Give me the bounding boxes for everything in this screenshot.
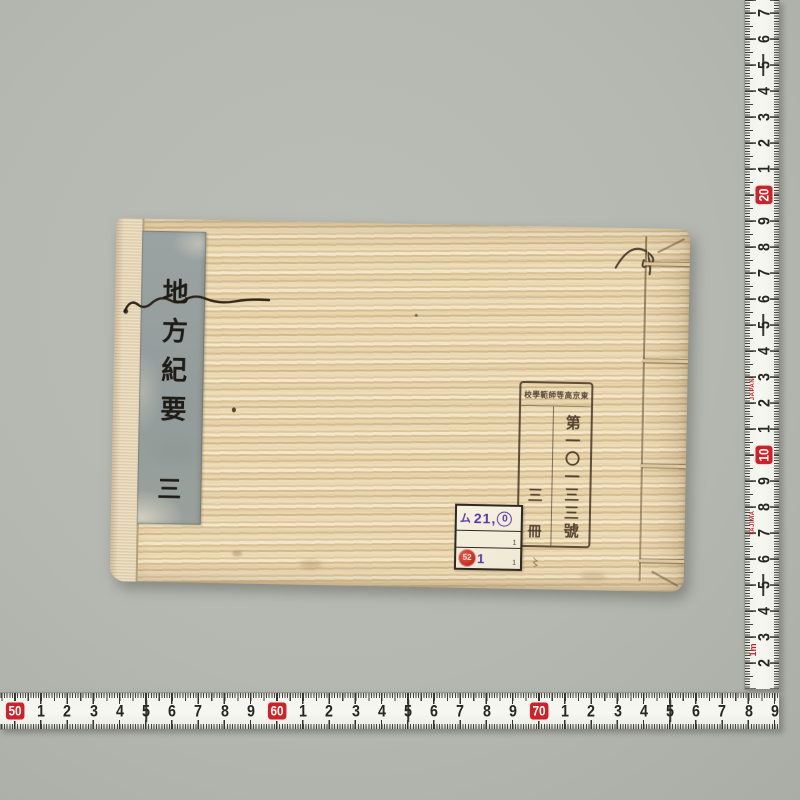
ruler-number: 9 xyxy=(756,217,773,225)
ruler-number: 2 xyxy=(63,703,71,720)
tape-brand-text: 1m xyxy=(748,643,758,656)
ruler-number: 2 xyxy=(325,703,333,720)
ruler-number: 8 xyxy=(756,503,773,511)
ruler-number: 8 xyxy=(221,703,229,720)
ruler-number: 5 xyxy=(142,703,150,720)
ruler-number: 5 xyxy=(666,703,674,720)
ruler-number: 9 xyxy=(771,703,779,720)
ruler-number: 5 xyxy=(756,61,773,69)
ruler-number: 7 xyxy=(756,529,773,537)
call-label-row-3: 52 1 1 xyxy=(456,548,520,569)
stamp-header-text: 東京高等師範學校 xyxy=(521,383,591,407)
ruler-number: 1 xyxy=(756,165,773,173)
ruler-number: 6 xyxy=(168,703,176,720)
binding-thread xyxy=(639,236,648,581)
tape-brand-text: JAPAN xyxy=(750,377,756,399)
ruler-number: 6 xyxy=(756,555,773,563)
ruler-ticks-mm xyxy=(0,693,779,698)
ruler-number: 2 xyxy=(756,659,773,667)
ruler-number: 3 xyxy=(756,633,773,641)
call-number-label: ム 21, 0 1 52 1 1 xyxy=(454,504,523,571)
library-stamp: 東京高等師範學校 三 冊 第一〇一三三號 xyxy=(516,381,593,548)
ruler-decade-badge: 50 xyxy=(6,703,24,720)
ruler-number: 6 xyxy=(756,295,773,303)
ruler-number: 1 xyxy=(299,703,307,720)
ruler-ticks-halfcm xyxy=(745,0,753,689)
volume-calligraphy: 三 xyxy=(157,469,182,504)
call-label-small-mark: 1 xyxy=(512,540,516,547)
ruler-number: 3 xyxy=(614,703,622,720)
corner-stitch xyxy=(651,571,678,587)
ruler-decade-badge: 20 xyxy=(756,186,773,204)
ruler-number: 3 xyxy=(90,703,98,720)
stamp-volume-count: 三 xyxy=(528,484,543,505)
ruler-number: 9 xyxy=(247,703,255,720)
ink-curl-mark xyxy=(608,230,669,279)
ruler-number: 3 xyxy=(352,703,360,720)
ruler-number: 3 xyxy=(756,373,773,381)
stamp-volume-column: 三 冊 xyxy=(518,406,554,546)
vertical-ruler-tape: 7654321209876543211098765432JAPANTAJIMA1… xyxy=(744,0,780,690)
ruler-number: 6 xyxy=(756,35,773,43)
ruler-decade-badge: 10 xyxy=(756,446,773,464)
speck xyxy=(232,407,236,412)
ruler-decade-badge: 70 xyxy=(530,703,548,720)
ruler-number: 7 xyxy=(194,703,202,720)
stamp-volume-unit: 冊 xyxy=(527,521,541,541)
ruler-number: 9 xyxy=(756,477,773,485)
corner-stitch xyxy=(657,238,685,253)
stamp-number-column: 第一〇一三三號 xyxy=(551,407,591,547)
ruler-number: 7 xyxy=(756,269,773,277)
ruler-number: 8 xyxy=(756,243,773,251)
ruler-number: 1 xyxy=(37,703,45,720)
call-label-row-2: 1 xyxy=(456,531,520,549)
ruler-number: 6 xyxy=(430,703,438,720)
ruler-number: 4 xyxy=(640,703,648,720)
title-slip: 地方紀要 三 xyxy=(137,231,207,525)
binding-stitch xyxy=(639,559,684,563)
call-label-prefix: ム xyxy=(460,510,471,526)
speck xyxy=(415,314,418,317)
ruler-number: 2 xyxy=(587,703,595,720)
ruler-number: 2 xyxy=(756,399,773,407)
stain xyxy=(580,572,606,580)
ruler-number: 8 xyxy=(483,703,491,720)
stamp-accession-number: 第一〇一三三號 xyxy=(559,415,582,541)
ruler-number: 7 xyxy=(756,9,773,17)
stain xyxy=(232,550,242,556)
call-label-number: 21, xyxy=(474,510,497,526)
ruler-number: 9 xyxy=(509,703,517,720)
ruler-number: 1 xyxy=(756,425,773,433)
binding-stitch xyxy=(643,359,688,363)
call-label-small-mark: 1 xyxy=(512,560,516,567)
binding-stitch xyxy=(641,464,686,468)
ruler-ticks-mm xyxy=(774,0,779,689)
ruler-number: 2 xyxy=(756,139,773,147)
call-label-row-1: ム 21, 0 xyxy=(457,506,521,532)
ruler-ticks-cm xyxy=(0,720,779,729)
handwritten-mark: 〻 xyxy=(530,554,541,570)
ruler-number: 7 xyxy=(718,703,726,720)
call-label-circled-digit: 0 xyxy=(497,511,512,526)
ruler-ticks-halfcm xyxy=(0,693,779,701)
ruler-number: 1 xyxy=(561,703,569,720)
book: 地方紀要 三 東京高等師範學校 xyxy=(110,218,691,592)
stain xyxy=(300,560,322,569)
ruler-ticks-mm xyxy=(745,0,750,689)
ruler-ticks-mm xyxy=(0,724,779,729)
ruler-number: 3 xyxy=(756,113,773,121)
ruler-decade-badge: 60 xyxy=(268,703,286,720)
ruler-number: 4 xyxy=(756,87,773,95)
binding-stitch xyxy=(645,262,690,266)
ruler-number: 8 xyxy=(745,703,753,720)
tape-brand-text: TAJIMA xyxy=(750,510,756,535)
ruler-number: 6 xyxy=(692,703,700,720)
ruler-number: 4 xyxy=(378,703,386,720)
ruler-number: 5 xyxy=(756,581,773,589)
title-calligraphy: 地方紀要 xyxy=(157,278,186,434)
ruler-number: 4 xyxy=(756,347,773,355)
ruler-number: 7 xyxy=(456,703,464,720)
call-label-copy-number: 1 xyxy=(477,551,485,566)
book-cover: 地方紀要 三 東京高等師範學校 xyxy=(110,218,691,592)
ruler-number: 5 xyxy=(756,321,773,329)
ruler-number: 4 xyxy=(116,703,124,720)
ruler-number: 5 xyxy=(404,703,412,720)
photo-stage: 地方紀要 三 東京高等師範學校 xyxy=(0,0,800,800)
red-circle-stamp: 52 xyxy=(459,550,475,566)
ruler-number: 4 xyxy=(756,607,773,615)
horizontal-ruler-tape: 501234567896012345678970123456789 xyxy=(0,692,780,730)
